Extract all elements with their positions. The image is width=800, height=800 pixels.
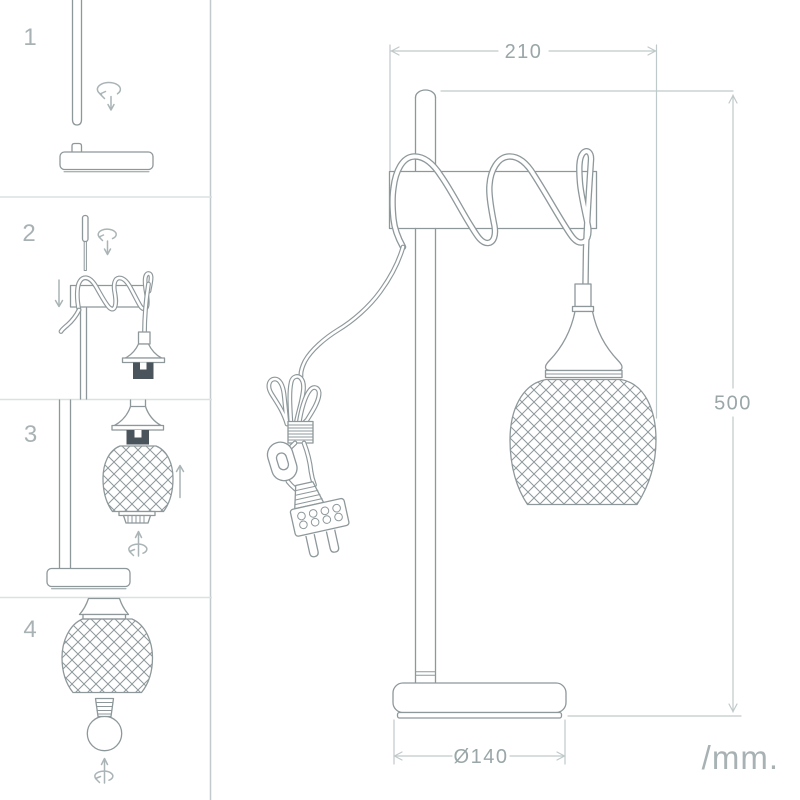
socket-rim	[112, 426, 164, 431]
socket-neck	[139, 332, 151, 344]
lamp-pole	[416, 90, 436, 683]
finial-rod	[83, 216, 89, 242]
step-number: 4	[23, 616, 36, 643]
lamp-base	[47, 569, 130, 587]
down-arrow-icon	[56, 280, 63, 307]
rotation-arrow-icon	[98, 229, 116, 254]
cord-wrap	[61, 274, 151, 333]
socket-neck	[575, 284, 591, 307]
height-label: 500	[714, 393, 752, 415]
base-plate	[398, 713, 562, 719]
plug-prong	[306, 534, 319, 557]
step-number: 3	[24, 421, 37, 448]
mesh-shade	[103, 446, 173, 512]
socket-notch	[140, 363, 147, 370]
socket-rim	[83, 615, 126, 620]
lamp-pole	[73, 0, 82, 125]
width-label: 210	[505, 41, 543, 63]
socket-neck	[131, 400, 146, 407]
step-number: 2	[22, 220, 35, 247]
step-1-panel: 1	[23, 0, 153, 172]
base-body	[393, 683, 566, 713]
step-4-panel: 4	[23, 599, 152, 784]
lamp-base	[60, 152, 153, 170]
socket-notch	[135, 430, 142, 438]
lamp-base	[393, 683, 566, 718]
socket-neck-band	[573, 307, 594, 312]
pole-socket-nub	[72, 144, 82, 153]
lamp-assembly-diagram: 1 2	[0, 0, 800, 800]
diagram-canvas: 1 2	[0, 0, 800, 800]
socket-cover	[545, 284, 622, 378]
plug-prong	[326, 530, 339, 553]
socket-flare	[126, 344, 162, 358]
socket-cover	[123, 332, 165, 379]
socket-rim	[123, 358, 165, 363]
units-label: /mm.	[702, 739, 779, 776]
bulb-glass	[87, 716, 121, 750]
rotation-arrow-icon	[95, 759, 113, 784]
socket-cover	[112, 400, 164, 445]
step-2-panel: 2	[22, 216, 164, 400]
socket-flare	[80, 599, 129, 615]
pole-cap	[416, 90, 436, 97]
step-number: 1	[23, 24, 36, 51]
rotation-arrow-icon	[97, 82, 120, 110]
up-arrow-icon	[177, 466, 184, 498]
rotation-arrow-icon	[129, 532, 147, 557]
shade-collar	[119, 512, 155, 524]
main-lamp-drawing	[264, 90, 656, 718]
mesh-shade	[510, 380, 656, 505]
base-diameter-dimension: Ø140	[394, 720, 565, 768]
light-bulb	[87, 699, 121, 751]
socket-flare	[545, 312, 622, 371]
mesh-shade	[62, 619, 153, 693]
base-diameter-label: Ø140	[454, 746, 509, 768]
power-plug	[285, 476, 355, 560]
step-3-panel: 3	[24, 400, 184, 589]
finial-rod-thread	[84, 242, 86, 271]
cord-coil	[269, 376, 319, 443]
socket-flare	[115, 407, 162, 426]
